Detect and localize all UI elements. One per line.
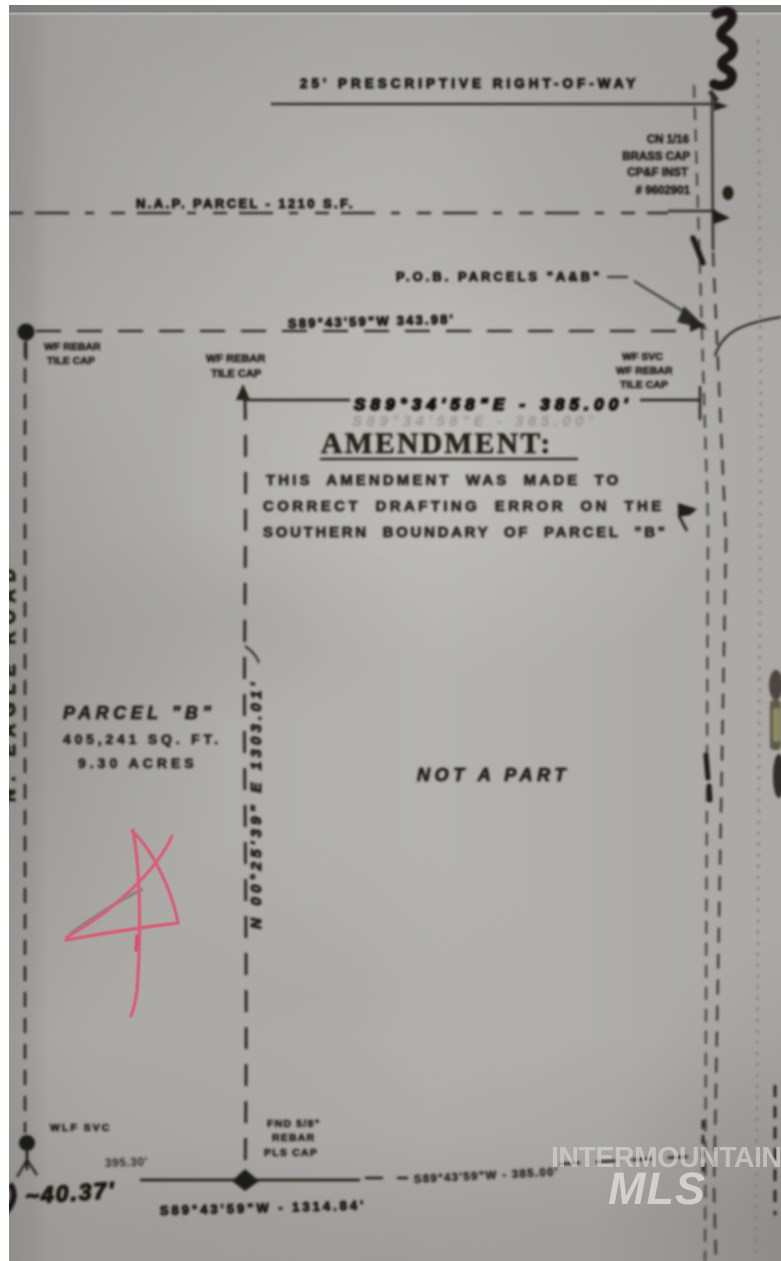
svg-text:WLF SVC: WLF SVC [50,1122,111,1134]
svg-text:TILE CAP: TILE CAP [47,355,95,367]
svg-text:PLS CAP: PLS CAP [264,1147,318,1159]
svg-text:25' PRESCRIPTIVE RIGHT-OF-WAY: 25' PRESCRIPTIVE RIGHT-OF-WAY [300,76,639,91]
svg-text:P.O.B. PARCELS "A&B": P.O.B. PARCELS "A&B" [396,269,602,284]
svg-text:NOT A PART: NOT A PART [417,765,570,785]
svg-text:N 00°25'39" E 1303.01': N 00°25'39" E 1303.01' [248,679,265,929]
svg-text:AMENDMENT:: AMENDMENT: [321,428,553,460]
svg-text:405,241 SQ. FT.: 405,241 SQ. FT. [63,731,222,747]
svg-text:CORRECT DRAFTING ERROR ON THE: CORRECT DRAFTING ERROR ON THE [263,498,665,515]
svg-text:WF REBAR: WF REBAR [44,341,101,353]
svg-text:N.A.P. PARCEL - 1210 S.F.: N.A.P. PARCEL - 1210 S.F. [136,196,355,211]
svg-text:PARCEL "B": PARCEL "B" [63,703,215,723]
svg-text:CP&F INST: CP&F INST [627,167,688,179]
svg-text:TILE CAP: TILE CAP [211,368,261,380]
svg-text:THIS AMENDMENT WAS MADE TO: THIS AMENDMENT WAS MADE TO [266,472,621,489]
svg-text:9.30 ACRES: 9.30 ACRES [78,755,198,771]
svg-text:SOUTHERN BOUNDARY OF PARCEL "B: SOUTHERN BOUNDARY OF PARCEL "B" [263,524,668,541]
svg-text:REBAR: REBAR [272,1132,315,1144]
svg-text:WF REBAR: WF REBAR [616,365,673,377]
svg-text:N. EAGLE ROAD: N. EAGLE ROAD [0,561,19,802]
svg-text:BRASS CAP: BRASS CAP [622,151,690,163]
svg-text:TILE CAP: TILE CAP [620,379,668,391]
svg-text:S89°34'58"E - 385.00': S89°34'58"E - 385.00' [354,395,633,414]
svg-text:# 9602901: # 9602901 [636,185,691,197]
svg-text:S89°43'59"W 343.98': S89°43'59"W 343.98' [288,312,455,331]
svg-text:MLS: MLS [608,1163,706,1214]
svg-text:S89°43'59"W - 385.00': S89°43'59"W - 385.00' [414,1166,560,1186]
svg-text:CN 1/16: CN 1/16 [647,134,689,146]
svg-text:FND 5/8": FND 5/8" [267,1118,321,1130]
svg-text:WF REBAR: WF REBAR [206,353,265,365]
svg-text:S89°43'59"W - 1314.84': S89°43'59"W - 1314.84' [160,1198,367,1218]
svg-text:WF SVC: WF SVC [622,351,663,363]
svg-text:395.30': 395.30' [105,1155,149,1170]
svg-text:~40.37': ~40.37' [25,1177,117,1209]
